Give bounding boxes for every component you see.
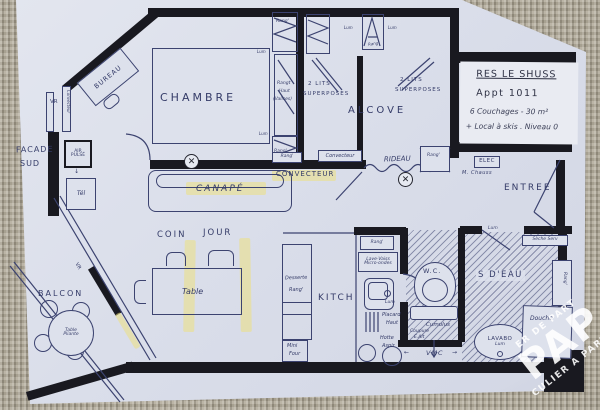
listing-note: RES LE SHUSS Appt 1011 6 Couchages - 30 … (460, 61, 579, 144)
kitchen-rang-box: Rang' (360, 236, 394, 250)
coupure-line2: E.Alt (414, 336, 424, 341)
rangt-haut-1: Rangt (277, 82, 290, 87)
folding-table-line2: Pliante (63, 333, 78, 338)
note-residence-name: RES LE SHUSS (476, 70, 556, 80)
coin-label: COIN (157, 231, 187, 240)
burner-1 (358, 344, 376, 362)
light-cross-glyph-2: ✕ (188, 157, 196, 167)
floor-plan-photo: CHAMBRE BUREAU Rang' Lum Rangt Haut (Val… (0, 0, 600, 410)
hotte-line2: Aspir (382, 344, 395, 349)
rangt-haut-2: Haut (279, 90, 290, 95)
kitchen-rang-label: Rang' (371, 241, 384, 246)
folding-table: Table Pliante (48, 310, 94, 356)
entry-door-lines (534, 160, 560, 228)
bunks-right-line2: SUPERPOSES (395, 88, 441, 94)
jour-label: JOUR (203, 229, 232, 238)
chambre-closet-top (272, 12, 298, 52)
sofa-label: CANAPÉ (196, 185, 244, 194)
lum-label-3: Lum (344, 26, 353, 30)
elec-label: ELEC (479, 159, 495, 165)
alcove-closet-left (306, 14, 330, 54)
coupure-line1: Coupure (410, 330, 429, 335)
air-pulse-arrow: ↓ (74, 169, 79, 175)
bunks-left-line1: 2 LITS (308, 82, 331, 88)
chair-top-2 (208, 250, 234, 266)
elec-box: ELEC (474, 156, 500, 168)
vmc-arrow-right: → (452, 350, 457, 356)
rang-cross-box (420, 146, 450, 172)
kitchen-faucet-icon (384, 290, 391, 297)
room-label-alcove: ALCOVE (348, 106, 406, 116)
vmc-arrow-left: ← (404, 350, 409, 356)
chair-left (134, 280, 146, 304)
hotte-line1: Hotte (380, 336, 394, 341)
rideau-label: RIDEAU (384, 156, 411, 164)
note-capacity: 6 Couchages - 30 m² (470, 108, 548, 116)
left-convecteur-label: Convecteur (66, 90, 70, 113)
closet-rang-label-1: Rang' (276, 20, 289, 25)
ceiling-light-icon: ✕ (398, 172, 413, 187)
sdeau-door-line (482, 230, 510, 250)
rangt-haut-3: (Valises) (273, 98, 292, 103)
air-pulse-line2: PULSÉ (71, 154, 85, 159)
desserte-label-2: Rang' (289, 288, 303, 293)
vr-label-left: VR (50, 100, 58, 106)
dining-table-label: Table (182, 288, 203, 296)
hob-strokes (366, 312, 378, 332)
facade-label-1: FACADE (16, 146, 54, 155)
left-window (46, 92, 54, 132)
air-pulse-box: AIR PULSÉ (64, 140, 92, 168)
lum-label-1: Lum (257, 50, 266, 54)
room-label-kitch: KITCH (318, 294, 355, 303)
room-label-chambre: CHAMBRE (160, 92, 236, 103)
room-label-sdeau: S D'EAU (476, 270, 525, 281)
desk-label: BUREAU (93, 64, 123, 90)
lum-label-sink: Lum (385, 301, 395, 306)
microwave-label: Micro-ondes (364, 262, 391, 267)
note-apartment-number: Appt 1011 (476, 89, 539, 99)
cumulus-label: Cumulus (426, 323, 450, 329)
facade-label-2: SUD (20, 160, 40, 168)
bunks-left-line2: SUPERPOSES (303, 92, 349, 98)
room-label-wc: W.C. (423, 268, 441, 275)
mini-four-line1: Mini (287, 344, 297, 349)
chambre-door-arc (126, 134, 150, 160)
rang-cross-label: Rang' (426, 154, 441, 159)
lum-label-4: Lum (388, 26, 397, 30)
room-label-balcon: BALCON (38, 290, 83, 298)
lum-label-2: Lum (259, 132, 268, 136)
ceiling-light-icon-2: ✕ (184, 154, 199, 169)
chambre-closet-mid (274, 54, 298, 136)
mini-four-line2: Four (289, 352, 300, 357)
towel-dryer-box: Sèche Serv (522, 235, 568, 246)
note-extras: + Local à skis . Niveau 0 (466, 123, 558, 131)
lum-label-door: Lum (488, 227, 498, 232)
tel-label: Tél (77, 191, 85, 197)
convecteur-box-alcove: Convecteur (318, 150, 362, 162)
rang-shelf-label: Rang' (281, 155, 294, 160)
toilet-seat (422, 278, 448, 302)
placard-haut-line2: Haut (386, 321, 398, 326)
convecteur-box-label: Convecteur (326, 154, 355, 159)
hall-door-line (336, 172, 362, 200)
m-chauss-label: M. Chauss (462, 171, 492, 176)
towel-dryer-label: Sèche Serv (532, 238, 557, 243)
dishwasher-microwave-box: Lave-Vaiss Micro-ondes (358, 252, 398, 272)
placard-haut-line1: Placard (382, 313, 401, 318)
light-cross-glyph: ✕ (402, 175, 410, 185)
room-label-entree: ENTREE (504, 184, 552, 193)
bunks-right-line1: 2 LITS (400, 78, 423, 84)
convecteur-main-label: CONVECTEUR (276, 171, 334, 178)
desserte-label-1: Desserte (285, 276, 307, 282)
closet-rang-label-2: Rang' (274, 150, 287, 155)
tel-box: Tél (66, 178, 96, 210)
toilet-tank (410, 306, 458, 320)
chair-top-1 (166, 252, 186, 266)
vmc-label: VMC (426, 350, 444, 357)
burner-2 (382, 346, 402, 366)
